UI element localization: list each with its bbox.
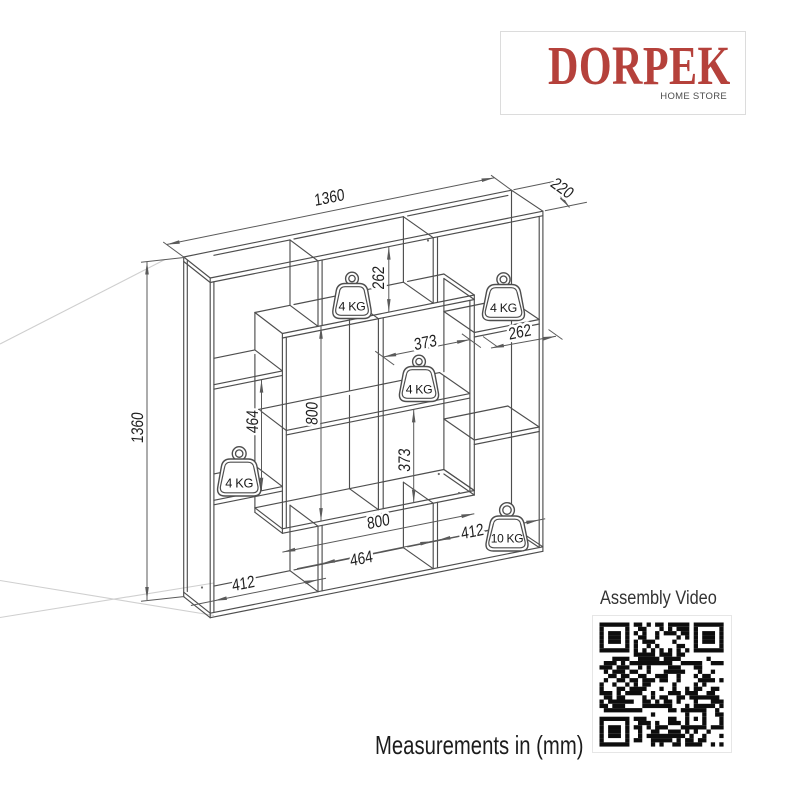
- svg-text:4 KG: 4 KG: [490, 301, 517, 315]
- svg-text:464: 464: [244, 409, 263, 434]
- svg-text:4 KG: 4 KG: [338, 299, 365, 313]
- svg-text:4 KG: 4 KG: [406, 382, 433, 396]
- svg-text:800: 800: [304, 401, 323, 426]
- svg-text:262: 262: [370, 265, 389, 290]
- svg-text:1360: 1360: [129, 411, 148, 443]
- svg-text:10 KG: 10 KG: [491, 532, 524, 546]
- svg-text:373: 373: [396, 448, 415, 473]
- svg-text:4 KG: 4 KG: [225, 475, 253, 490]
